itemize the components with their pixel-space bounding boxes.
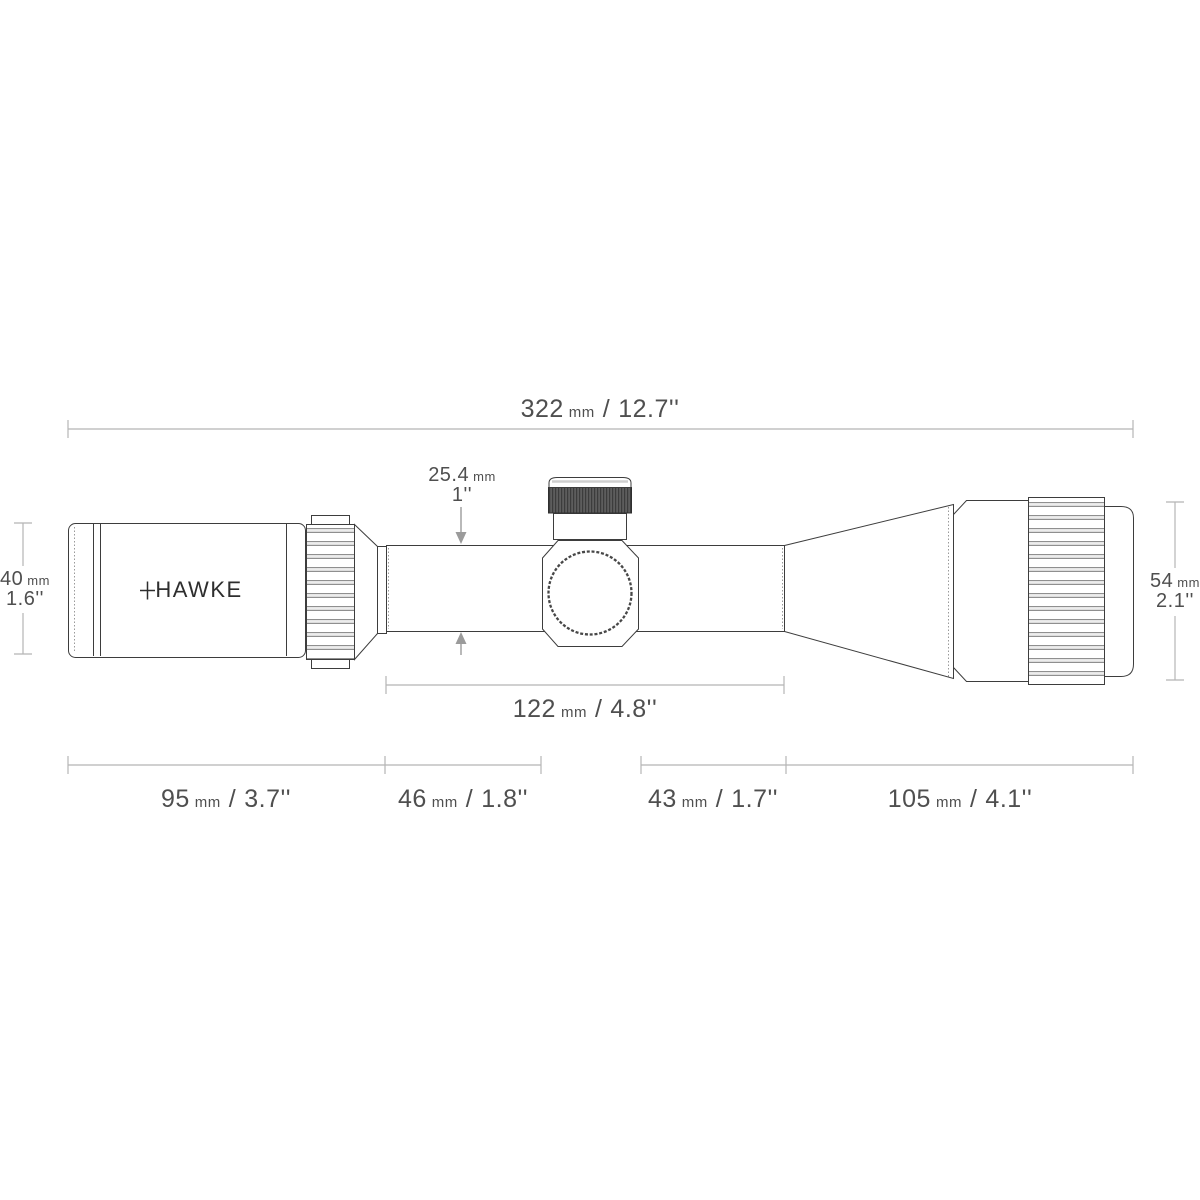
dim-label-mount-tube-length: 122mm/4.8'': [435, 696, 735, 726]
dim-line-mount-tube: [386, 676, 784, 694]
dim-separator: /: [603, 395, 610, 423]
dim-imperial: 3.7'': [244, 785, 291, 813]
dim-unit: mm: [561, 704, 587, 721]
dim-separator: /: [229, 785, 236, 813]
dim-unit: mm: [432, 794, 458, 811]
elevation-turret-knurl: [549, 488, 632, 514]
dim-unit: mm: [27, 573, 50, 588]
dim-value: 105: [888, 785, 931, 813]
dim-label-objective-assembly-length: 105mm/4.1'': [810, 786, 1110, 816]
dim-value: 122: [513, 695, 556, 723]
dim-separator: /: [466, 785, 473, 813]
dim-unit: mm: [473, 469, 496, 484]
eyepiece-taper-cone: [355, 525, 378, 660]
tube-arrow-down-icon: [456, 532, 467, 544]
objective-bell-cone: [785, 505, 954, 679]
dim-unit: mm: [569, 404, 595, 421]
brand-logo-text: HAWKE: [155, 577, 242, 603]
dim-imperial: 2.1'': [1156, 590, 1194, 612]
dim-unit: mm: [1177, 575, 1200, 590]
dim-value: 54: [1150, 570, 1173, 592]
dim-unit: mm: [195, 794, 221, 811]
dim-separator: /: [716, 785, 723, 813]
dim-value: 95: [161, 785, 190, 813]
elevation-turret-base: [554, 514, 627, 540]
dim-imperial: 1.7'': [731, 785, 778, 813]
dim-line-bottom-left: [68, 756, 541, 774]
dim-unit: mm: [682, 794, 708, 811]
dim-imperial: 1.6'': [6, 588, 44, 610]
brand-logo: HAWKE: [91, 577, 291, 603]
tube-collar: [378, 547, 387, 634]
dim-label-total-length: 322mm/12.7'': [450, 396, 750, 426]
dim-unit: mm: [936, 794, 962, 811]
dim-value: 322: [521, 395, 564, 423]
dim-imperial: 4.1'': [985, 785, 1032, 813]
power-ring-knurled: [307, 525, 355, 660]
side-focus-wheel: [549, 552, 632, 635]
tube-arrow-up-icon: [456, 632, 467, 644]
dim-value: 43: [648, 785, 677, 813]
dim-value: 25.4: [428, 464, 469, 486]
dim-label-tube-diameter: 25.4mm 1'': [387, 466, 537, 505]
dim-separator: /: [595, 695, 602, 723]
power-ring-top-lip: [312, 516, 350, 525]
dim-imperial: 12.7'': [618, 395, 679, 423]
dim-imperial: 1.8'': [481, 785, 528, 813]
dim-imperial: 4.8'': [610, 695, 657, 723]
dim-imperial: 1'': [452, 484, 472, 506]
diagram-canvas: HAWKE 322mm/12.7'' 25.4mm 1'' 40mm 1.6''…: [0, 0, 1200, 1200]
dim-label-ocular-diameter: 40mm 1.6'': [0, 570, 100, 609]
dim-value: 40: [0, 568, 23, 590]
dim-line-bottom-right: [641, 756, 1133, 774]
dim-value: 46: [398, 785, 427, 813]
dim-label-objective-diameter: 54mm 2.1'': [1100, 572, 1200, 611]
objective-collar: [954, 501, 1029, 682]
dim-separator: /: [970, 785, 977, 813]
power-ring-bottom-lip: [312, 660, 350, 669]
ao-focus-ring-knurled: [1029, 498, 1105, 685]
crosshair-icon: [139, 580, 156, 601]
